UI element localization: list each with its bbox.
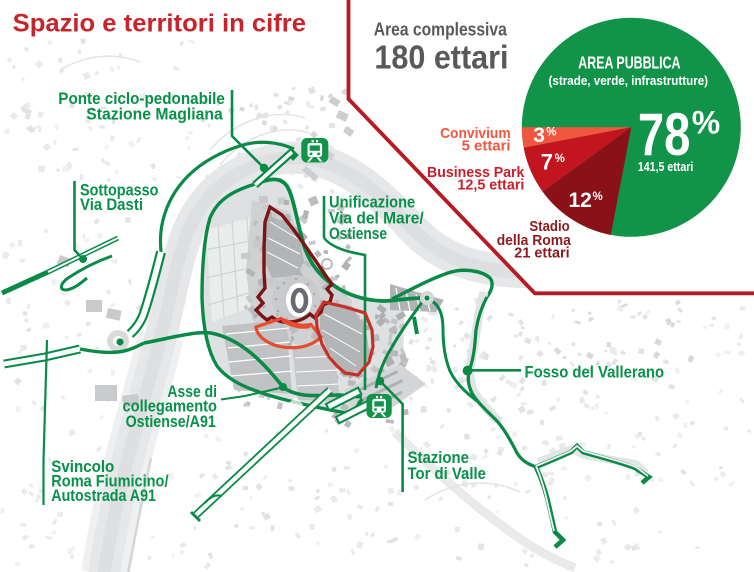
svg-text:%: %: [593, 191, 603, 203]
svg-text:5 ettari: 5 ettari: [462, 138, 511, 155]
svg-text:Ostiense: Ostiense: [329, 224, 387, 243]
svg-text:%: %: [555, 153, 565, 165]
svg-text:%: %: [546, 127, 556, 139]
svg-text:%: %: [692, 105, 720, 141]
svg-text:12,5 ettari: 12,5 ettari: [457, 177, 524, 194]
svg-text:Spazio e territori in cifre: Spazio e territori in cifre: [13, 10, 306, 38]
svg-text:(strade, verde, infrastrutture: (strade, verde, infrastrutture): [549, 73, 709, 88]
svg-text:AREA PUBBLICA: AREA PUBBLICA: [578, 52, 680, 72]
svg-text:Tor di Valle: Tor di Valle: [408, 464, 486, 483]
svg-text:180 ettari: 180 ettari: [374, 39, 508, 76]
svg-text:Autostrada A91: Autostrada A91: [51, 486, 156, 505]
svg-text:7: 7: [541, 150, 553, 175]
svg-text:21 ettari: 21 ettari: [514, 245, 569, 262]
svg-text:12: 12: [569, 189, 592, 212]
svg-text:78: 78: [638, 101, 691, 168]
svg-text:3: 3: [533, 124, 545, 147]
svg-text:Via Dasti: Via Dasti: [80, 195, 143, 214]
svg-text:Ostiense/A91: Ostiense/A91: [126, 412, 216, 431]
svg-text:141,5 ettari: 141,5 ettari: [638, 159, 693, 174]
svg-text:Fosso del Vallerano: Fosso del Vallerano: [525, 363, 665, 382]
svg-text:Area complessiva: Area complessiva: [374, 18, 508, 39]
svg-text:Stazione Magliana: Stazione Magliana: [86, 105, 223, 124]
